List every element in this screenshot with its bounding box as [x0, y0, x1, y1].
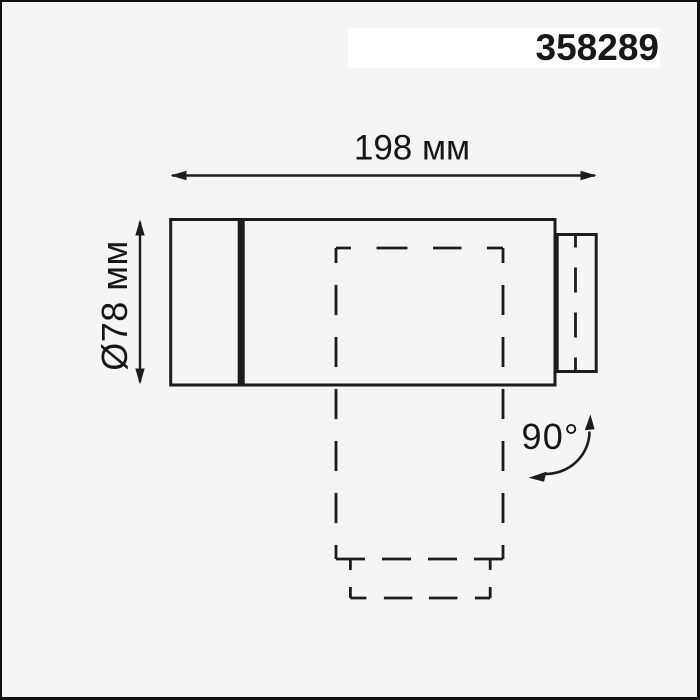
svg-text:Ø78 мм: Ø78 мм — [94, 240, 135, 371]
svg-text:198 мм: 198 мм — [354, 129, 470, 168]
svg-text:90°: 90° — [522, 416, 580, 457]
